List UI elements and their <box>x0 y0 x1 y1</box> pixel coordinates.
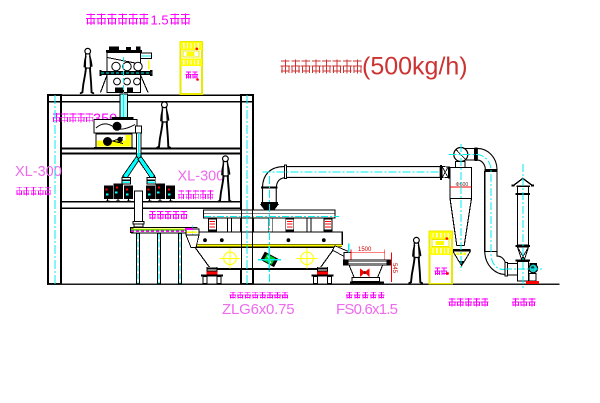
svg-text:XL-300: XL-300 <box>178 169 225 185</box>
svg-text:1.5: 1.5 <box>151 13 169 28</box>
svg-text:Φ600: Φ600 <box>456 182 469 188</box>
svg-text:545: 545 <box>391 263 397 274</box>
svg-text:ZLG6x0.75: ZLG6x0.75 <box>222 301 294 318</box>
svg-text:1500: 1500 <box>358 247 372 253</box>
svg-text:(500kg/h): (500kg/h) <box>362 53 468 81</box>
svg-text:FS0.6x1.5: FS0.6x1.5 <box>336 301 398 318</box>
